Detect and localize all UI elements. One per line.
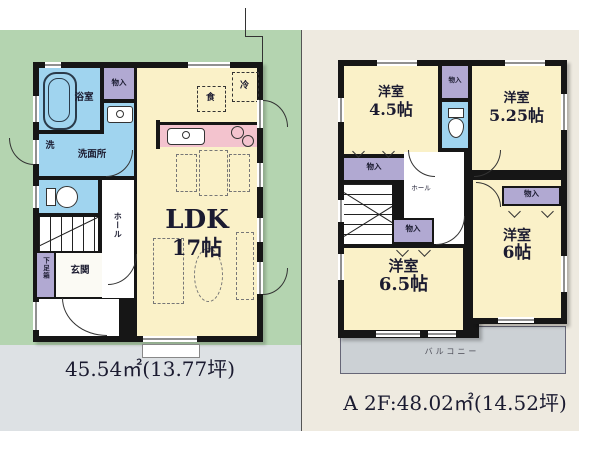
dining-chairs (229, 154, 250, 192)
bathroom-label: 浴室 (68, 93, 100, 104)
window (338, 254, 344, 280)
stove-burner-icon (242, 135, 254, 147)
window (561, 256, 567, 292)
panel-divider-line (301, 30, 302, 431)
toilet-icon (46, 188, 56, 206)
window (377, 60, 417, 66)
site-boundary-line (262, 36, 263, 62)
stairs-2f (344, 184, 392, 244)
window (33, 96, 39, 122)
bedroom-6-5-label: 洋室 6.5帖 (344, 258, 463, 296)
closet-label: 物入 (502, 190, 561, 199)
room-size: 6.5帖 (344, 275, 463, 296)
window (257, 163, 263, 187)
ldk-name: LDK (137, 206, 257, 236)
closet-label: 物入 (344, 163, 404, 172)
floor1-area-text: 45.54㎡(13.77坪) (20, 358, 280, 381)
floorplan-canvas: 浴室 物入 洗 洗面所 下足箱 玄関 ホール 冷 食 LDK 17帖 (0, 0, 600, 449)
washer-label: 洗 (42, 141, 58, 151)
bedroom-5-25-label: 洋室 5.25帖 (472, 92, 561, 125)
window (33, 186, 39, 208)
fridge-label: 冷 (232, 81, 257, 91)
room-name: 洋室 (344, 86, 438, 101)
window (143, 336, 197, 342)
window (428, 331, 456, 337)
window (505, 60, 545, 66)
site-boundary-line (245, 36, 263, 37)
faucet-icon (182, 131, 190, 139)
cupboard-label: 食 (197, 93, 224, 103)
toilet-icon (56, 186, 78, 208)
room-size: 5.25帖 (472, 107, 561, 125)
closet-label: 物入 (392, 225, 434, 234)
shoe-cabinet-label: 下足箱 (41, 257, 48, 280)
window (561, 94, 567, 130)
balcony-label: バルコニー (340, 347, 564, 356)
vanity-bowl-icon (116, 110, 124, 118)
room-size: 4.5帖 (344, 101, 438, 119)
window (498, 317, 534, 323)
toilet-icon (448, 108, 464, 118)
closet-label: 物入 (442, 77, 468, 84)
ldk-label: LDK 17帖 (137, 206, 257, 260)
window (376, 331, 420, 337)
room-name: 洋室 (344, 258, 463, 275)
kitchen-wall-stub (156, 120, 160, 149)
window (33, 302, 39, 330)
site-boundary-line (245, 8, 246, 36)
entrance-label: 玄関 (58, 266, 102, 277)
window (338, 98, 344, 122)
bathtub-icon (48, 78, 70, 122)
room-size: 6帖 (473, 244, 561, 264)
dining-chairs (176, 154, 197, 192)
dining-table (199, 150, 228, 196)
window (188, 62, 230, 68)
stairs-1f (39, 217, 98, 251)
window (257, 218, 263, 242)
floor2-area-text: A 2F:48.02㎡(14.52坪) (330, 392, 580, 415)
porch-step (142, 344, 200, 358)
hall-2f-label: ホール (404, 185, 438, 192)
bedroom-6-label: 洋室 6帖 (473, 228, 561, 264)
room-name: 洋室 (472, 92, 561, 107)
bedroom-4-5-label: 洋室 4.5帖 (344, 86, 438, 119)
window (45, 62, 61, 68)
window (338, 200, 344, 222)
hall-1f-label: ホール (113, 212, 122, 239)
ldk-size: 17帖 (137, 236, 257, 260)
room-name: 洋室 (473, 228, 561, 244)
closet-1f-label: 物入 (104, 79, 134, 88)
